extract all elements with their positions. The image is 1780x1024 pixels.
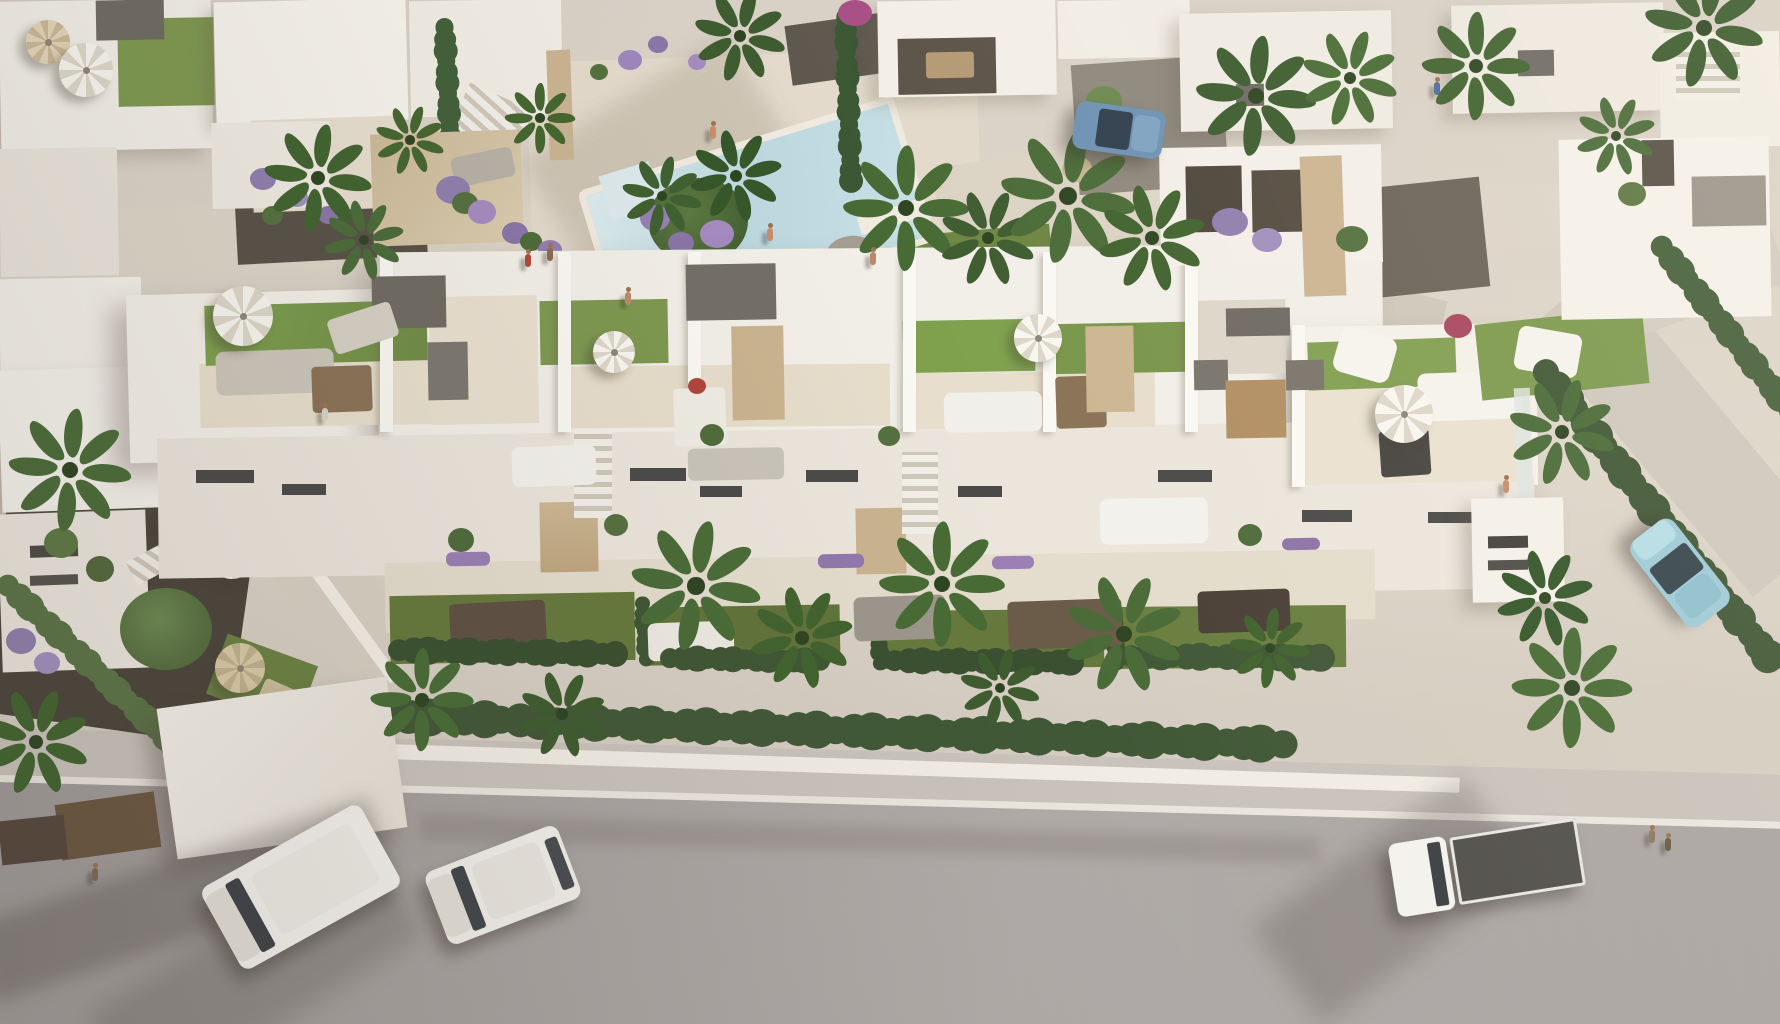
roof-parasol (213, 286, 273, 346)
roof-storage-box (1286, 360, 1325, 391)
window-slit (700, 486, 742, 497)
person (623, 287, 633, 305)
palm-tree (1240, 618, 1300, 678)
palm-tree (896, 538, 988, 630)
palm-tree (1509, 562, 1581, 634)
shrub (1336, 226, 1368, 252)
window-slit (1302, 510, 1352, 522)
palm-tree (384, 662, 460, 738)
parapet-wall (1292, 325, 1305, 487)
window-slit (806, 470, 858, 482)
red-bougainvillea (1444, 314, 1472, 338)
window-slit (1488, 536, 1528, 549)
aerial-render (0, 0, 1780, 1024)
palm-tree (632, 166, 692, 226)
wood-stair-landing (1225, 379, 1286, 438)
palm-tree (1436, 26, 1516, 106)
balcony-plant (604, 514, 628, 536)
villa-block (1058, 0, 1191, 59)
palm-tree (514, 92, 566, 144)
person (1432, 77, 1442, 95)
stone-clad-pillar (1300, 155, 1347, 296)
dark-fence (0, 815, 68, 866)
person (523, 249, 533, 267)
balcony-plant (448, 528, 474, 552)
palm-tree (1522, 392, 1602, 472)
roof-parasol (1375, 385, 1433, 443)
person (1501, 475, 1511, 493)
garden-parasol (215, 643, 265, 693)
terrace-sofa (688, 447, 785, 481)
villa-block (213, 0, 408, 124)
red-flower-pot (688, 378, 706, 394)
person (868, 247, 878, 265)
window-slit (1158, 470, 1212, 482)
palm-tree (764, 600, 840, 676)
roof-parasol (1014, 314, 1062, 362)
shrub (590, 64, 608, 80)
palm-tree (278, 138, 358, 218)
person (545, 243, 555, 261)
villa-block (0, 147, 119, 277)
balcony-plant (700, 424, 724, 446)
palm-tree (702, 142, 770, 210)
shrub (44, 528, 78, 558)
balcony-plant (878, 426, 900, 446)
person (90, 863, 100, 881)
palm-tree (1586, 106, 1646, 166)
palm-tree (970, 658, 1030, 718)
window-slit (30, 574, 78, 586)
patio-parasol (59, 43, 113, 97)
balcony-plant (1238, 524, 1262, 546)
window-slit (958, 486, 1002, 497)
shrub (1618, 182, 1646, 206)
window-slit (196, 470, 254, 483)
flower-bed (1212, 208, 1248, 236)
roof-storage-box (427, 342, 468, 401)
island-flowers (700, 220, 734, 248)
palm-tree (860, 162, 952, 254)
stone-clad-wall (1085, 326, 1134, 413)
terrace-stairs (902, 452, 938, 534)
palm-tree (1314, 42, 1386, 114)
porch-dining-table (926, 52, 974, 79)
terrace-sofa (511, 445, 596, 488)
palm-tree (384, 114, 436, 166)
palm-tree (530, 682, 594, 746)
flower-box (992, 556, 1034, 570)
parapet-wall (1185, 252, 1198, 432)
flower-bed (1252, 228, 1282, 252)
bougainvillea (838, 0, 872, 26)
window-slit (282, 484, 326, 495)
palm-tree (25, 425, 115, 515)
palm-tree (706, 2, 774, 70)
garden-tree (120, 588, 212, 670)
roof-pergola (1226, 307, 1290, 336)
window-slit (630, 468, 686, 481)
person (708, 121, 718, 139)
flower-box (1282, 538, 1320, 551)
palm-tree (952, 202, 1024, 274)
person (1647, 825, 1657, 843)
flower-bush (648, 36, 668, 53)
window-slit (1428, 512, 1472, 523)
flower-box (818, 554, 864, 569)
person (320, 403, 330, 421)
palm-tree (1660, 0, 1748, 72)
roof-hatch (1692, 175, 1767, 226)
parapet-wall (558, 252, 571, 432)
palm-tree (648, 538, 744, 634)
roof-sofa (944, 391, 1043, 433)
flower-bush (468, 200, 496, 224)
terrace-sofa (1100, 497, 1209, 545)
parapet-wall (903, 252, 916, 432)
flower-bush (618, 50, 642, 70)
palm-tree (1080, 590, 1168, 678)
palm-tree (0, 702, 76, 782)
palm-tree (1018, 146, 1118, 246)
roof-parasol (593, 331, 635, 373)
roof-storage-box (1194, 360, 1229, 391)
shrub (86, 556, 114, 582)
palm-tree (1112, 198, 1192, 278)
palm-tree (1528, 644, 1616, 732)
roof-pergola (686, 263, 777, 321)
flower-bush (34, 652, 60, 674)
flower-bush (6, 628, 36, 654)
person (1663, 833, 1673, 851)
palm-tree (334, 210, 394, 270)
roof-pergola (96, 0, 165, 41)
stone-clad-wall (731, 326, 785, 421)
flower-box (446, 552, 490, 567)
person (765, 223, 775, 241)
palm-tree (1212, 52, 1300, 140)
